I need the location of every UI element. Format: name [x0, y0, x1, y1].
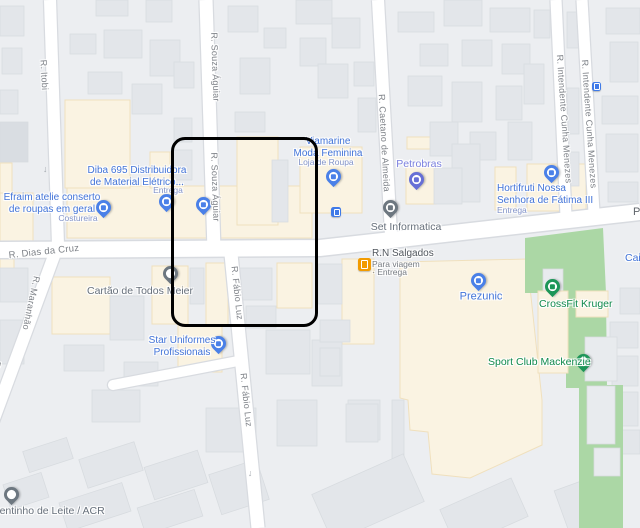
fuel-pump-icon	[414, 177, 419, 182]
store-square-icon-1[interactable]	[331, 207, 341, 217]
shopping-cart-icon	[476, 278, 481, 283]
poi-label-cartao-de-todos[interactable]: Cartão de Todos Meier	[87, 285, 193, 297]
poi-label-caixa[interactable]: Caixa	[625, 252, 640, 264]
restaurant-icon-rn-salgados[interactable]	[358, 258, 371, 271]
shopping-bag-icon	[549, 170, 554, 175]
poi-sublabel-diba: Entrega	[153, 185, 183, 195]
graduation-cap-icon	[388, 205, 393, 210]
street-label-partial-p: P	[633, 206, 640, 219]
poi-label-star-uniformes[interactable]: Star Uniformes Profissionais	[149, 335, 216, 359]
dot-icon	[168, 271, 173, 276]
dot-icon	[9, 492, 14, 497]
poi-label-sport-club-mackenzie[interactable]: Sport Club Mackenzie	[488, 356, 591, 368]
poi-label-crossfit-kruger[interactable]: CrossFit Kruger	[539, 298, 613, 310]
poi-label-prezunic[interactable]: Prezunic	[460, 291, 503, 304]
poi-label-dentinho[interactable]: Dentinho de Leite / ACR	[0, 505, 105, 517]
shopping-bag-icon	[164, 199, 169, 204]
shopping-bag-icon	[216, 341, 221, 346]
poi-label-petrobras[interactable]: Petrobras	[396, 158, 442, 170]
shopping-bag-icon	[331, 174, 336, 179]
poi-sublabel-viamarine: Loja de Roupa	[298, 157, 353, 167]
poi-label-set-informatica[interactable]: Set Informatica	[371, 221, 442, 233]
store-square-icon-2[interactable]	[592, 82, 601, 91]
dumbbell-icon	[550, 284, 555, 289]
one-way-arrow-icon: ↓	[43, 164, 48, 174]
shopping-bag-icon	[101, 205, 106, 210]
shopping-bag-icon	[201, 202, 206, 207]
poi-sublabel-efraim: Costureira	[58, 213, 97, 223]
poi-sublabel-hortifruti: Entrega	[497, 205, 527, 215]
street-label-itobi: R. Itobi	[38, 59, 50, 90]
map-canvas[interactable]: R. Itobi R. Souza Águiar R. Souza Águiar…	[0, 0, 640, 528]
map-base-layer	[0, 0, 640, 528]
poi-sublabel-rn-salgados-2: · Entrega	[372, 267, 407, 277]
poi-label-hortifruti[interactable]: Hortifruti Nossa Senhora de Fátima III	[497, 183, 593, 207]
